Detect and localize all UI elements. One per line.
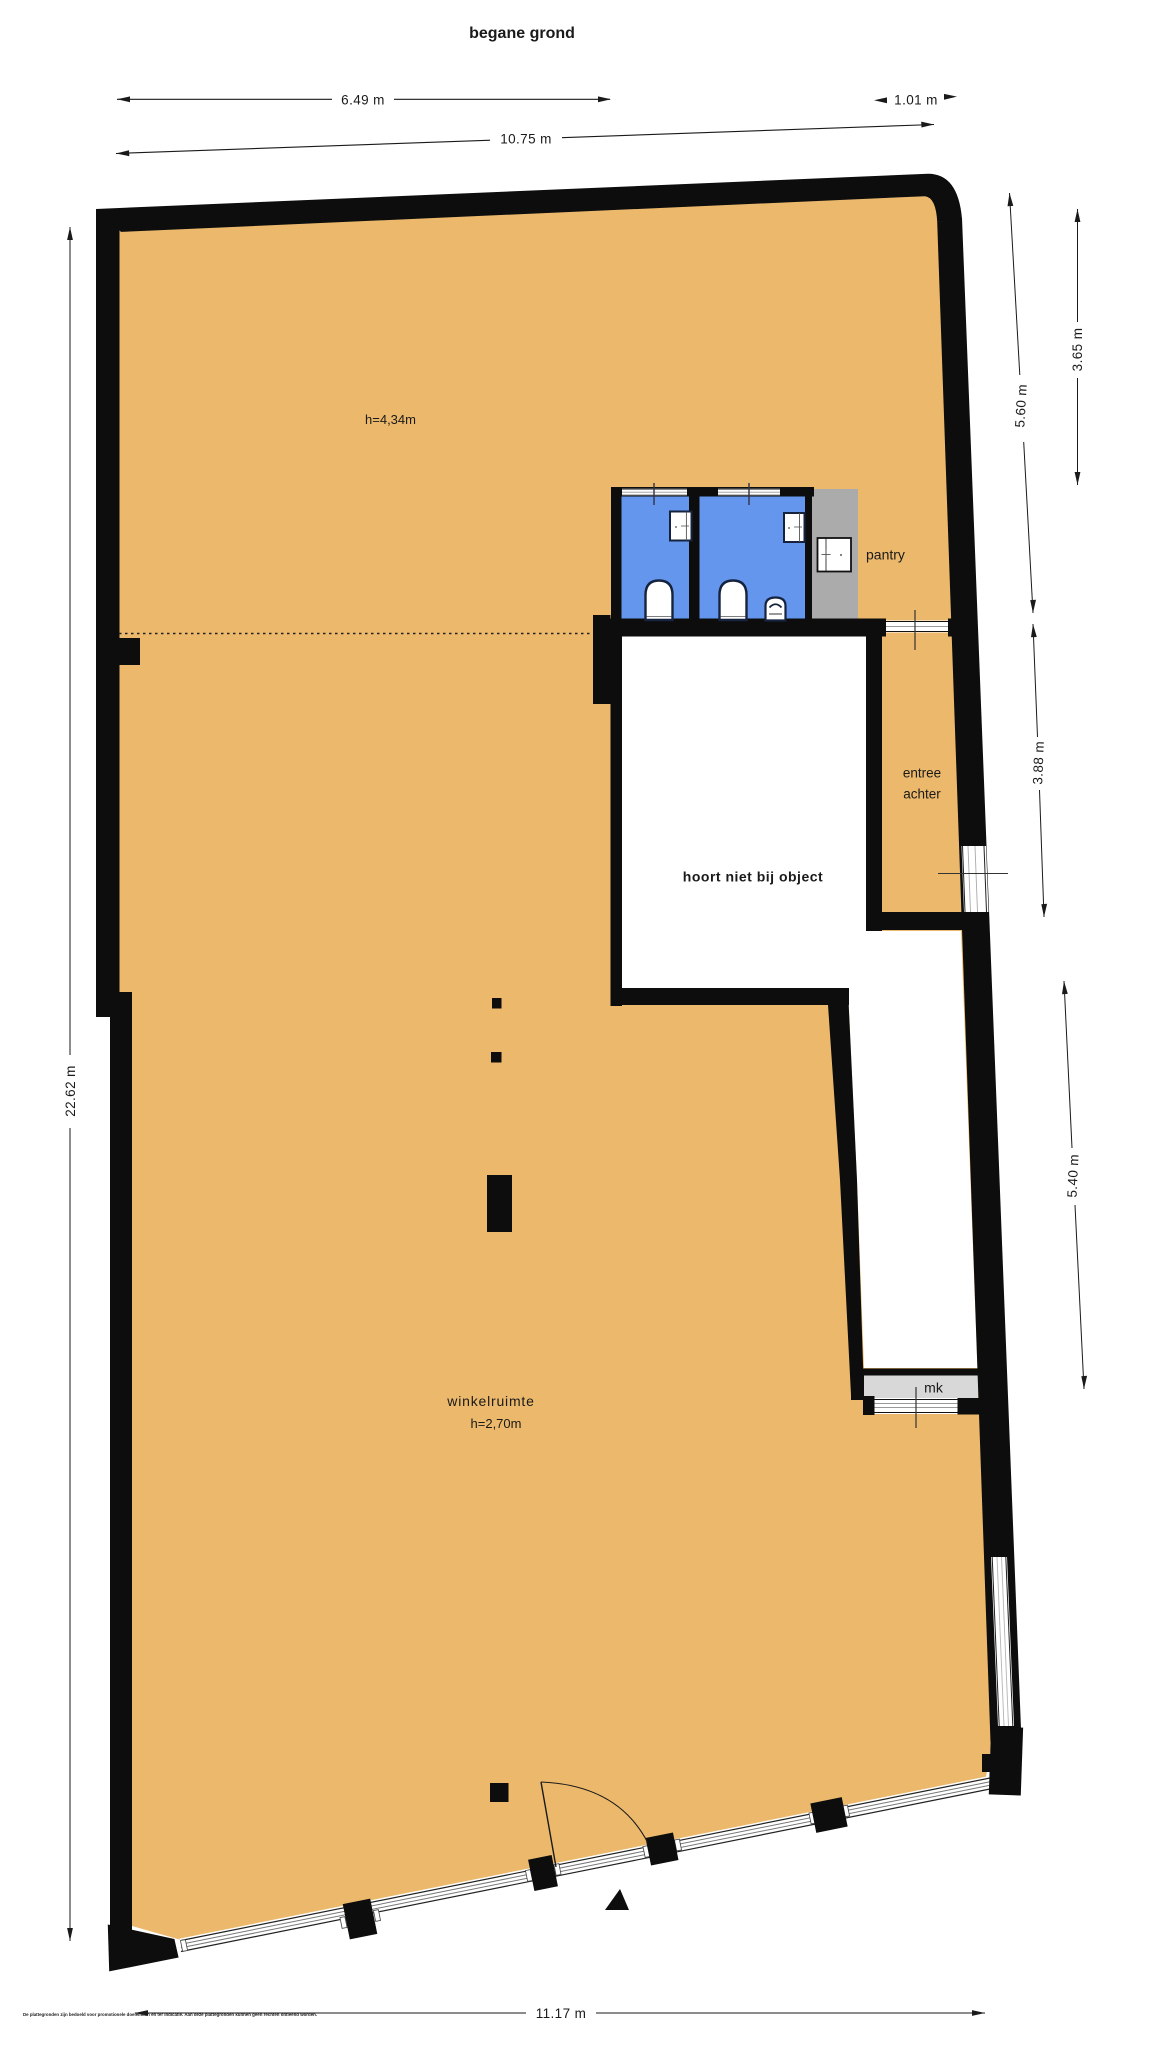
svg-text:winkelruimte: winkelruimte [446, 1393, 534, 1409]
svg-text:h=4,34m: h=4,34m [365, 412, 416, 427]
svg-text:5.40 m: 5.40 m [1064, 1154, 1081, 1198]
svg-text:De plattegronden zijn bedoeld: De plattegronden zijn bedoeld voor promo… [23, 2012, 317, 2017]
svg-text:6.49 m: 6.49 m [341, 93, 385, 108]
svg-text:pantry: pantry [866, 547, 905, 563]
svg-text:5.60 m: 5.60 m [1012, 384, 1029, 428]
svg-text:3.65 m: 3.65 m [1070, 328, 1085, 372]
svg-text:h=2,70m: h=2,70m [471, 1416, 522, 1431]
svg-text:achter: achter [903, 787, 941, 802]
svg-text:entree: entree [903, 766, 941, 781]
svg-text:hoort niet bij object: hoort niet bij object [683, 869, 823, 885]
svg-text:10.75 m: 10.75 m [500, 132, 552, 147]
svg-text:22.62 m: 22.62 m [63, 1065, 78, 1117]
svg-text:11.17 m: 11.17 m [536, 2006, 587, 2021]
svg-text:3.88 m: 3.88 m [1030, 741, 1047, 785]
svg-text:begane grond: begane grond [469, 25, 575, 42]
svg-text:1.01 m: 1.01 m [894, 93, 938, 108]
svg-text:mk: mk [924, 1380, 944, 1396]
